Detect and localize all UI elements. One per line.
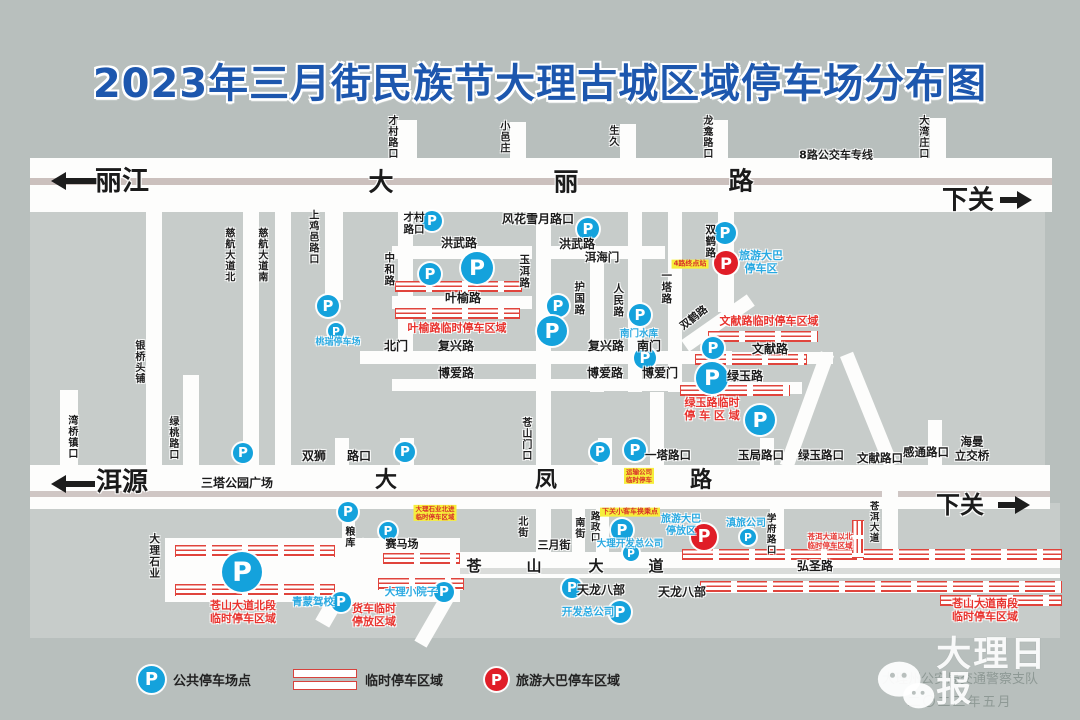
map-legend: P 公共停车场点 临时停车区域 P 旅游大巴停车区域 xyxy=(138,666,620,693)
map-label: 大湾庄口 xyxy=(916,115,928,159)
map-label: 大理开发总公司 xyxy=(597,538,664,549)
map-label: 绿玉路临时 停 车 区 域 xyxy=(684,397,740,423)
map-label: 苍洱大道 xyxy=(867,501,878,543)
map-label: 复兴路 xyxy=(438,339,474,353)
temp-parking-zone-icon xyxy=(293,669,357,690)
public-parking-icon: P xyxy=(629,304,651,326)
map-label: 路 xyxy=(728,166,753,196)
map-label: 慈航大道北 xyxy=(222,228,234,283)
map-label: 洱海门 xyxy=(585,251,620,265)
bus-parking-icon: P xyxy=(714,251,738,275)
public-parking-icon: P xyxy=(331,592,351,612)
map-label: 绿桃路口 xyxy=(166,416,178,460)
legend-item-temp-parking: 临时停车区域 xyxy=(293,669,443,690)
map-label: 大理石业北进 临时停车区域 xyxy=(414,505,457,521)
public-parking-icon: P xyxy=(222,552,262,592)
map-label: 桃瑞停车场 xyxy=(315,338,360,349)
temp-parking-zone xyxy=(708,331,818,342)
legend-label: 临时停车区域 xyxy=(365,670,443,689)
map-label: 才村路口 xyxy=(385,115,397,159)
public-parking-icon: P xyxy=(537,316,567,346)
road xyxy=(928,420,942,467)
map-label: 双鹤路 xyxy=(704,224,716,259)
public-parking-icon: P xyxy=(624,439,646,461)
map-label: 三月街 xyxy=(538,540,571,553)
map-label: 文献路口 xyxy=(857,452,903,466)
map-label: 护国路 xyxy=(573,281,585,316)
map-label: 博爱门 xyxy=(642,366,678,380)
map-label: 天龙八部 xyxy=(577,583,625,597)
public-parking-icon: P xyxy=(702,337,724,359)
legend-item-bus-parking: P 旅游大巴停车区域 xyxy=(485,668,620,691)
direction-arrow-left xyxy=(57,481,95,487)
map-label: 文献路 xyxy=(752,342,788,356)
map-label: 风花雪月路口 xyxy=(502,212,574,226)
map-label: 4路终点站 xyxy=(672,260,709,269)
legend-label: 公共停车场点 xyxy=(173,670,251,689)
map-label: 北街 xyxy=(515,516,527,538)
road xyxy=(712,120,728,158)
map-label: 下关 xyxy=(942,186,994,217)
credit-date: 二〇二三年五月 xyxy=(850,691,1070,710)
public-parking-icon: P xyxy=(547,295,569,317)
map-label: 才村 路口 xyxy=(404,212,425,237)
map-label: 丽 xyxy=(553,167,578,197)
map-label: 粮库 xyxy=(342,526,354,548)
map-label: 生久 xyxy=(606,125,618,147)
road xyxy=(325,212,343,300)
parking-map: PPPPPPPPPPPPPPPPPPPPPPPPPPPPPP丽江大丽路下关8路公… xyxy=(0,0,1080,720)
temp-parking-zone xyxy=(395,308,520,319)
map-label: 上鸡邑路口 xyxy=(306,210,318,265)
public-parking-icon: P xyxy=(395,442,415,462)
map-label: 叶榆路 xyxy=(445,291,481,305)
map-label: 玉洱路 xyxy=(518,254,530,289)
legend-label: 旅游大巴停车区域 xyxy=(516,670,620,689)
public-parking-icon: P xyxy=(745,405,775,435)
map-label: 下关 xyxy=(936,491,984,519)
map-label: 洱源 xyxy=(96,468,148,499)
map-label: 开发总公司 xyxy=(562,606,615,618)
map-label: 旅游大巴 停车区 xyxy=(739,250,783,276)
legend-item-public-parking: P 公共停车场点 xyxy=(138,666,251,693)
map-label: 旅游大巴 停放区 xyxy=(661,514,701,538)
direction-arrow-right xyxy=(1000,197,1026,203)
credit-block: 大理州公安局交通警察支队 二〇二三年五月 xyxy=(850,668,1070,710)
public-parking-icon: P xyxy=(422,211,442,231)
map-label: 玉局路口 xyxy=(738,449,784,463)
map-label: 小邑庄 xyxy=(497,121,509,154)
road xyxy=(30,158,1052,212)
map-label: 感通路口 xyxy=(903,446,949,460)
map-label: 8路公交车专线 xyxy=(799,150,873,163)
map-label: 南门水库 xyxy=(620,328,658,339)
public-parking-icon: P xyxy=(461,252,493,284)
map-label: 一塔路 xyxy=(660,270,672,305)
direction-arrow-left xyxy=(57,178,97,184)
public-parking-icon: P xyxy=(328,323,344,339)
temp-parking-zone xyxy=(175,545,335,557)
map-label: 人民路 xyxy=(612,283,624,318)
map-label: 丽江 xyxy=(95,166,149,198)
map-label: 大理小院子 xyxy=(385,586,438,598)
map-label: 绿玉路 xyxy=(727,369,763,383)
map-label: 三塔公园广场 xyxy=(201,476,273,490)
credit-text: 大理州公安局交通警察支队 xyxy=(850,668,1070,687)
map-label: 货车临时 停放区域 xyxy=(352,603,396,629)
map-label: 大 xyxy=(368,167,393,197)
bus-parking-icon: P xyxy=(485,668,508,691)
public-parking-icon: P xyxy=(233,443,253,463)
map-label: 苍 xyxy=(466,558,481,576)
map-label: 一塔路口 xyxy=(645,449,691,463)
map-label: 苍洱大道以北 临时停车区域 xyxy=(808,533,853,551)
map-label: 海曼 立交桥 xyxy=(955,435,990,462)
road xyxy=(275,212,291,467)
map-label: 学府路口 xyxy=(764,513,775,555)
map-label: 弘圣路 xyxy=(797,559,833,573)
public-parking-icon: P xyxy=(696,362,728,394)
road xyxy=(183,375,199,467)
public-parking-icon: P xyxy=(338,502,358,522)
road xyxy=(620,124,636,158)
map-label: 苍山大道北段 临时停车区域 xyxy=(210,600,276,626)
map-label: 道 xyxy=(648,558,663,576)
map-label: 湾桥镇口 xyxy=(65,415,77,459)
map-label: 大 xyxy=(375,468,397,494)
map-label: 南门 xyxy=(637,339,661,353)
map-label: 运输公司 临时停车 xyxy=(624,468,654,484)
map-label: 银桥头铺 xyxy=(132,340,144,384)
map-label: 下关小客车换乘点 xyxy=(600,508,660,517)
map-label: 大理石业 xyxy=(148,533,160,579)
map-label: 绿玉路口 xyxy=(798,449,844,463)
temp-parking-zone xyxy=(852,520,864,558)
map-label: 双狮 xyxy=(302,449,326,463)
map-label: 山 xyxy=(526,558,541,576)
road xyxy=(882,467,898,557)
map-label: 慈航大道南 xyxy=(255,228,267,283)
map-label: 洪武路 xyxy=(559,237,595,251)
map-label: 大 xyxy=(588,558,603,576)
map-label: 路 xyxy=(690,468,712,494)
road xyxy=(510,122,526,158)
temp-parking-zone xyxy=(700,581,1062,593)
map-label: 博爱路 xyxy=(438,366,474,380)
public-parking-icon: P xyxy=(714,222,736,244)
temp-parking-zone xyxy=(682,549,1062,560)
public-parking-icon: P xyxy=(138,666,165,693)
public-parking-icon: P xyxy=(317,295,339,317)
map-label: 中和路 xyxy=(383,252,395,287)
direction-arrow-right xyxy=(998,502,1024,508)
road xyxy=(930,118,946,158)
map-label: 凤 xyxy=(535,468,557,494)
map-label: 苍山大道南段 临时停车区域 xyxy=(952,598,1018,624)
map-label: 叶榆路临时停车区域 xyxy=(408,323,507,336)
temp-parking-zone xyxy=(680,385,790,396)
map-label: 北门 xyxy=(384,339,408,353)
public-parking-icon: P xyxy=(740,529,756,545)
map-label: 苍山门口 xyxy=(519,417,531,461)
map-label: 路口 xyxy=(347,449,371,463)
public-parking-icon: P xyxy=(419,263,441,285)
map-label: 博爱路 xyxy=(587,366,623,380)
temp-parking-zone xyxy=(383,553,460,564)
map-label: 天龙八部 xyxy=(658,585,706,599)
map-label: 复兴路 xyxy=(588,339,624,353)
map-label: 文献路临时停车区域 xyxy=(720,316,819,329)
map-label: 南街 xyxy=(572,517,584,539)
road xyxy=(397,120,417,158)
map-label: 赛马场 xyxy=(386,539,419,552)
map-label: 龙龛路口 xyxy=(700,115,712,159)
map-label: 洪武路 xyxy=(441,236,477,250)
map-label: 滇旅公司 xyxy=(726,518,766,530)
map-label: 青蒙驾校 xyxy=(292,596,334,608)
public-parking-icon: P xyxy=(590,442,610,462)
road xyxy=(146,212,162,467)
